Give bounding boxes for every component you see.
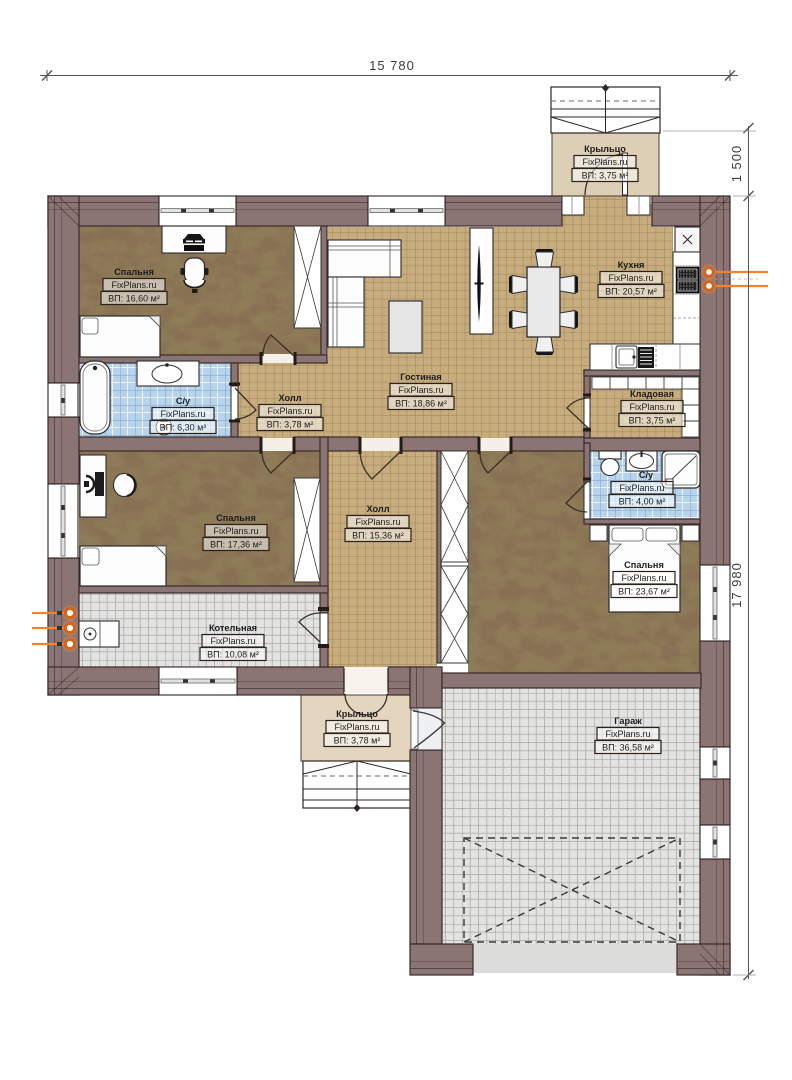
svg-text:ВП: 3,75 м²: ВП: 3,75 м² [582,171,629,181]
svg-text:Кладовая: Кладовая [630,389,674,399]
svg-text:FixPlans.ru: FixPlans.ru [582,157,627,167]
svg-text:FixPlans.ru: FixPlans.ru [619,483,664,493]
svg-text:С/у: С/у [639,470,654,480]
svg-text:Спальня: Спальня [114,267,154,277]
svg-text:ВП: 3,78 м²: ВП: 3,78 м² [267,420,314,430]
svg-text:1 500: 1 500 [729,145,744,183]
svg-text:FixPlans.ru: FixPlans.ru [605,729,650,739]
svg-text:FixPlans.ru: FixPlans.ru [398,385,443,395]
svg-text:FixPlans.ru: FixPlans.ru [629,402,674,412]
svg-text:Крыльцо: Крыльцо [584,144,626,154]
svg-text:FixPlans.ru: FixPlans.ru [334,722,379,732]
svg-text:FixPlans.ru: FixPlans.ru [160,409,205,419]
svg-text:ВП: 36,58 м²: ВП: 36,58 м² [602,743,654,753]
svg-text:С/у: С/у [176,396,191,406]
svg-text:Спальня: Спальня [624,560,664,570]
svg-text:ВП: 20,57 м²: ВП: 20,57 м² [605,287,657,297]
svg-text:FixPlans.ru: FixPlans.ru [355,517,400,527]
svg-text:Кухня: Кухня [618,260,645,270]
svg-text:ВП: 6,30 м²: ВП: 6,30 м² [160,423,207,433]
svg-text:ВП: 16,60 м²: ВП: 16,60 м² [108,294,160,304]
svg-text:Спальня: Спальня [216,513,256,523]
svg-text:Холл: Холл [278,393,301,403]
svg-text:FixPlans.ru: FixPlans.ru [621,573,666,583]
svg-text:Гостиная: Гостиная [400,372,442,382]
svg-text:FixPlans.ru: FixPlans.ru [111,280,156,290]
svg-text:FixPlans.ru: FixPlans.ru [210,636,255,646]
svg-text:ВП: 17,36 м²: ВП: 17,36 м² [210,540,262,550]
svg-text:Крыльцо: Крыльцо [336,709,378,719]
svg-text:ВП: 23,67 м²: ВП: 23,67 м² [618,587,670,597]
svg-text:ВП: 15,36 м²: ВП: 15,36 м² [352,531,404,541]
svg-text:FixPlans.ru: FixPlans.ru [267,406,312,416]
svg-text:Холл: Холл [366,504,389,514]
svg-text:FixPlans.ru: FixPlans.ru [608,273,653,283]
svg-text:FixPlans.ru: FixPlans.ru [213,526,258,536]
svg-text:ВП: 4,00 м²: ВП: 4,00 м² [619,497,666,507]
svg-text:ВП: 3,78 м²: ВП: 3,78 м² [334,736,381,746]
svg-text:Гараж: Гараж [614,716,642,726]
svg-text:ВП: 10,08 м²: ВП: 10,08 м² [207,650,259,660]
svg-text:ВП: 3,75 м²: ВП: 3,75 м² [629,416,676,426]
svg-text:15 780: 15 780 [369,58,415,73]
svg-text:17 980: 17 980 [729,562,744,608]
svg-text:Котельная: Котельная [209,623,257,633]
svg-text:ВП: 18,86 м²: ВП: 18,86 м² [395,399,447,409]
